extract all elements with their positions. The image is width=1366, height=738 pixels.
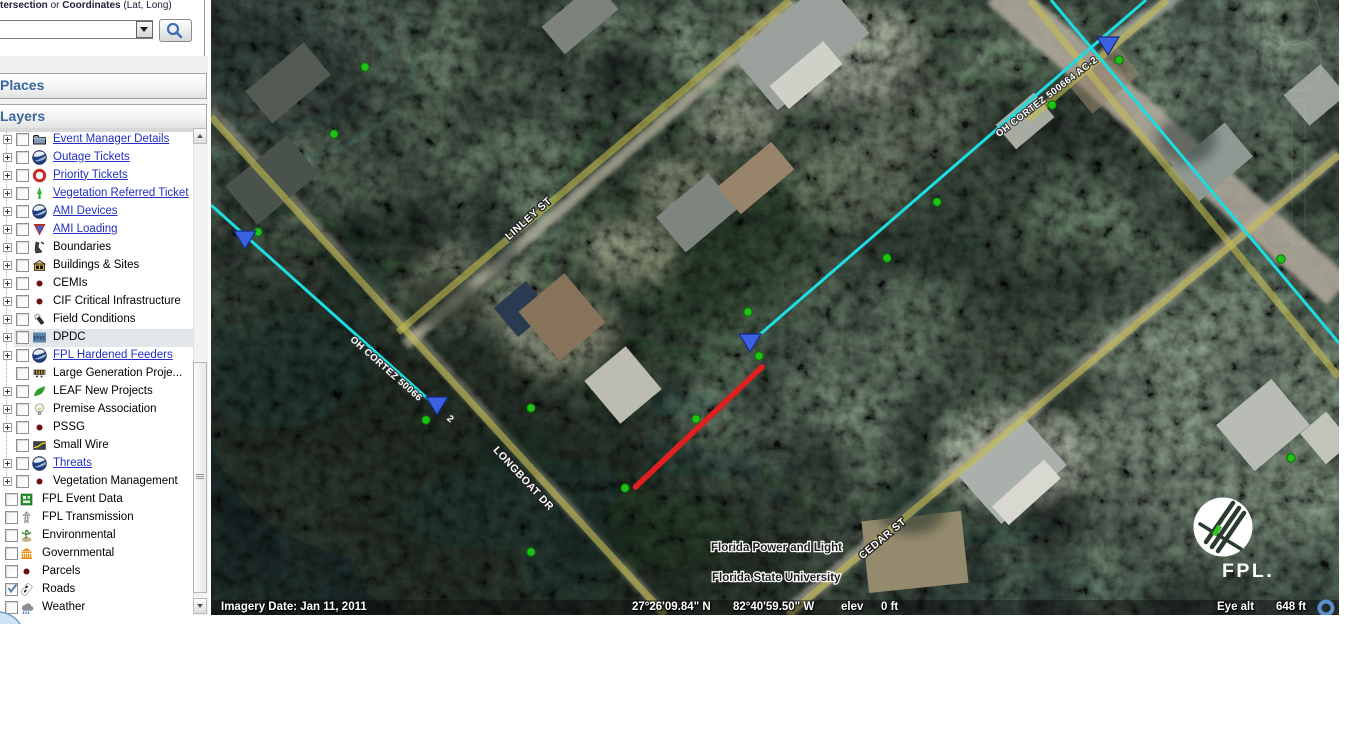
svg-text:DPDC: DPDC xyxy=(33,335,45,341)
svg-text:FPL.: FPL. xyxy=(1222,560,1274,582)
svg-text:Florida Power and Light: Florida Power and Light xyxy=(711,542,842,554)
svg-text:Florida State University: Florida State University xyxy=(712,572,841,584)
